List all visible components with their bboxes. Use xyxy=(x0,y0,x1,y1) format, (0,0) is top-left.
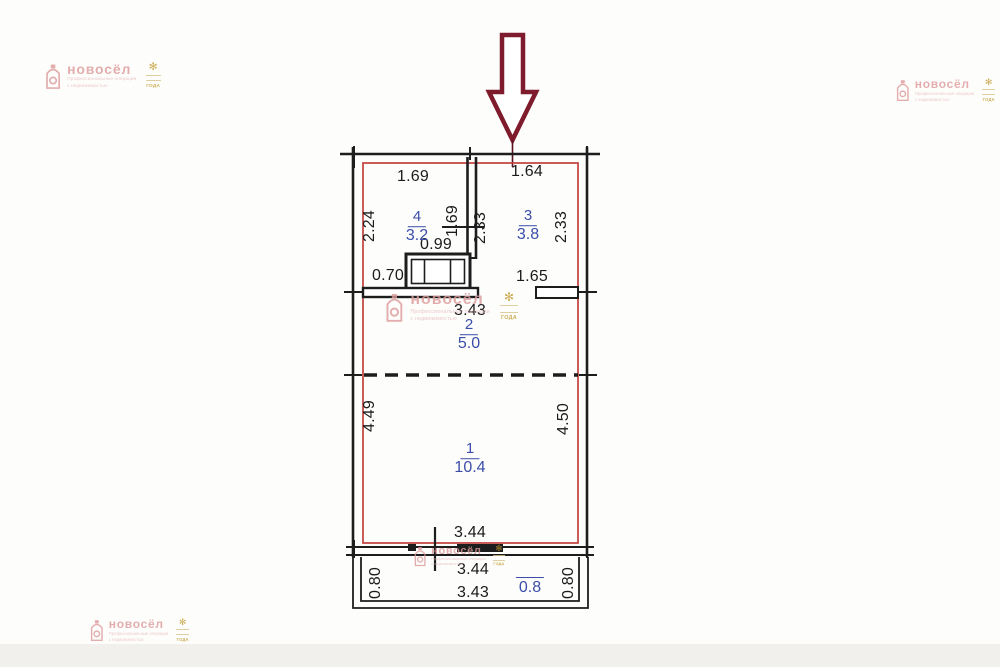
balcony-area-label: 0.8 xyxy=(516,577,544,597)
award-star-icon: ✻ xyxy=(495,545,502,553)
award-star-icon: ✻ xyxy=(179,618,187,627)
award-star-icon: ✻ xyxy=(149,62,158,73)
room-area: 5.0 xyxy=(458,335,480,353)
watermark-brand: новосёл xyxy=(915,78,975,91)
dimension-label: 2.24 xyxy=(361,210,379,242)
award-badge-lines xyxy=(146,75,161,82)
watermark-novosel: новосёл Профессиональные операции с недв… xyxy=(384,291,518,325)
watermark-text: новосёл Профессиональные операции с недв… xyxy=(431,545,486,567)
watermark-tagline: с недвижимостью xyxy=(410,316,489,323)
room-area: 3.8 xyxy=(517,226,539,244)
award-badge-text: ГОДА xyxy=(501,315,517,321)
award-badge-text: ГОДА xyxy=(983,97,995,102)
dimension-label: 3.43 xyxy=(457,584,489,602)
room-number: 3 xyxy=(519,208,537,226)
dimension-label: 0.80 xyxy=(367,567,385,599)
novosel-house-icon xyxy=(384,291,405,325)
floorplan-canvas: 1.69 1.64 0.99 0.70 1.65 3.43 3.44 3.44 … xyxy=(0,0,1000,667)
watermark-text: новосёл Профессиональные операции с недв… xyxy=(67,62,136,90)
dimension-label: 2.33 xyxy=(472,212,490,244)
watermark-brand: новосёл xyxy=(67,62,136,77)
room-area: 3.2 xyxy=(406,227,428,245)
novosel-house-icon xyxy=(895,78,911,103)
award-badge-lines xyxy=(493,555,505,561)
watermark-brand: новосёл xyxy=(109,618,169,631)
watermark-tagline: с недвижимостью xyxy=(109,637,169,643)
room-label-3: 3 3.8 xyxy=(517,208,539,244)
novosel-house-icon xyxy=(89,618,105,643)
watermark-text: новосёл Профессиональные операции с недв… xyxy=(109,618,169,642)
award-badge-text: ГОДА xyxy=(146,84,160,89)
watermark-tagline: с недвижимостью xyxy=(431,562,486,567)
award-star-icon: ✻ xyxy=(985,78,993,87)
award-star-icon: ✻ xyxy=(504,291,514,303)
watermark-award-badge: ✻ ГОДА xyxy=(982,78,995,102)
watermark-tagline: с недвижимостью xyxy=(67,84,136,90)
award-badge-lines xyxy=(982,89,995,95)
room-number: 1 xyxy=(461,441,479,459)
novosel-house-icon xyxy=(413,545,427,568)
room-label-1: 1 10.4 xyxy=(454,441,485,477)
watermark-brand: новосёл xyxy=(410,291,489,309)
watermark-text: новосёл Профессиональные операции с недв… xyxy=(915,78,975,102)
award-badge-lines xyxy=(500,305,518,313)
watermark-novosel: новосёл Профессиональные операции с недв… xyxy=(44,62,161,91)
watermark-award-badge: ✻ ГОДА xyxy=(493,545,505,566)
bathtub xyxy=(406,254,470,289)
dimension-label: 0.70 xyxy=(372,267,404,285)
apartment-red-outline xyxy=(363,163,578,543)
novosel-house-icon xyxy=(44,62,62,91)
award-badge-text: ГОДА xyxy=(177,637,189,642)
dimension-label: 4.50 xyxy=(555,403,573,435)
room-number: 4 xyxy=(408,209,426,227)
watermark-novosel: новосёл Профессиональные операции с недв… xyxy=(89,618,189,643)
dimension-label: 1.65 xyxy=(516,268,548,286)
dimension-label: 4.49 xyxy=(361,400,379,432)
watermark-award-badge: ✻ ГОДА xyxy=(500,291,518,321)
watermark-award-badge: ✻ ГОДА xyxy=(146,62,161,89)
award-badge-text: ГОДА xyxy=(493,562,504,566)
entrance-arrow xyxy=(489,35,536,167)
award-badge-lines xyxy=(176,629,189,635)
dimension-label: 1.64 xyxy=(511,163,543,181)
room-area: 10.4 xyxy=(454,459,485,477)
watermark-text: новосёл Профессиональные операции с недв… xyxy=(410,291,489,323)
dimension-label: 3.44 xyxy=(454,524,486,542)
watermark-brand: новосёл xyxy=(431,545,486,557)
dimension-label: 0.80 xyxy=(560,567,578,599)
dimension-label: 1.69 xyxy=(397,168,429,186)
dimension-label: 1.69 xyxy=(444,205,462,237)
watermark-novosel: новосёл Профессиональные операции с недв… xyxy=(895,78,995,103)
room-label-4: 4 3.2 xyxy=(406,209,428,245)
dimension-label: 2.33 xyxy=(553,211,571,243)
watermark-tagline: Профессиональные операции xyxy=(410,309,489,316)
watermark-novosel: новосёл Профессиональные операции с недв… xyxy=(413,545,505,568)
watermark-award-badge: ✻ ГОДА xyxy=(176,618,189,642)
wall-niche xyxy=(536,287,578,298)
watermark-tagline: с недвижимостью xyxy=(915,97,975,103)
